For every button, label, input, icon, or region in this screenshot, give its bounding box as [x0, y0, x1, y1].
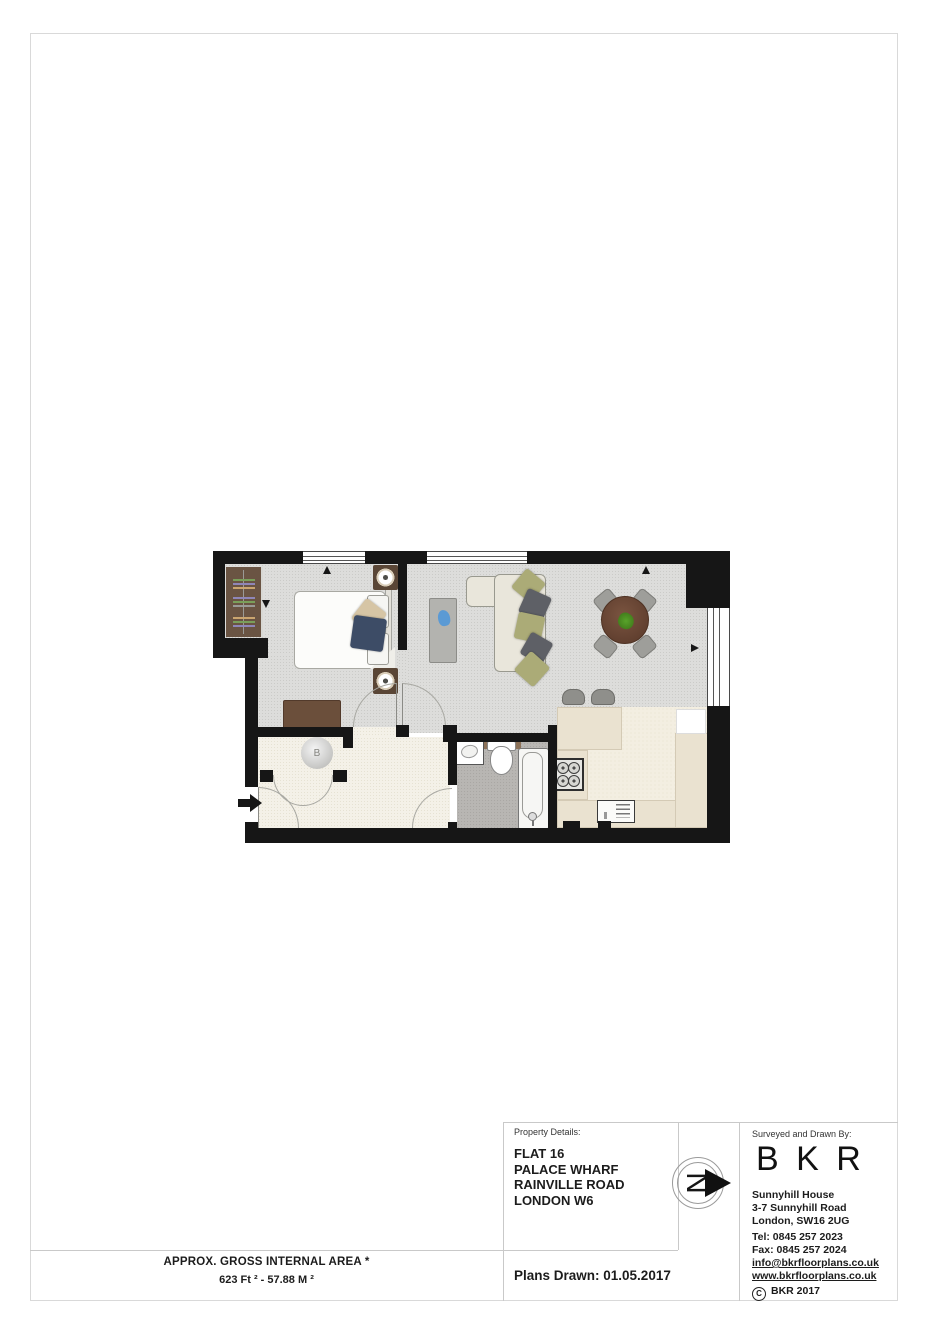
- clothes-hangers: [233, 597, 255, 607]
- bathroom-sink: [456, 739, 484, 765]
- company-address: Sunnyhill House 3-7 Sunnyhill Road Londo…: [752, 1189, 849, 1228]
- copyright-text: BKR 2017: [771, 1285, 820, 1297]
- floorplan-document-page: B: [0, 0, 932, 1332]
- boiler-label: B: [314, 748, 321, 759]
- footer-divider: [30, 1250, 678, 1251]
- hob-burner: [568, 762, 580, 774]
- wall: [448, 737, 457, 785]
- appliance-vents: [616, 804, 630, 818]
- north-arrow-pointer: [705, 1169, 731, 1197]
- dresser: [283, 700, 341, 729]
- wall: [398, 564, 407, 650]
- wall: [213, 551, 303, 564]
- wall: [686, 551, 730, 608]
- wall-marker-arrow: [642, 566, 650, 574]
- bedside-speaker: [373, 565, 398, 590]
- cushion-navy: [350, 615, 387, 652]
- toilet-bowl: [490, 746, 513, 775]
- bkr-logo: B K R: [756, 1140, 865, 1179]
- wall: [260, 770, 273, 782]
- wall: [448, 822, 457, 843]
- wall: [245, 822, 258, 843]
- wall: [548, 725, 557, 828]
- window: [303, 551, 365, 564]
- bathtub-inner: [522, 752, 543, 819]
- appliance-dial: [604, 812, 607, 819]
- table-plant: [615, 610, 636, 631]
- title-block-divider: [739, 1122, 740, 1301]
- website-link[interactable]: www.bkrfloorplans.co.uk: [752, 1270, 876, 1283]
- wall: [443, 733, 557, 742]
- sink-basin: [460, 743, 479, 759]
- wall: [213, 638, 268, 658]
- property-address: FLAT 16 PALACE WHARF RAINVILLE ROAD LOND…: [514, 1146, 625, 1208]
- kitchen-tall-unit: [676, 709, 706, 734]
- wall-marker-arrow: [262, 600, 270, 608]
- plans-drawn-date: Plans Drawn: 01.05.2017: [514, 1268, 671, 1283]
- wall: [245, 828, 730, 843]
- title-block-divider: [503, 1122, 504, 1301]
- wall: [333, 770, 347, 782]
- email-link[interactable]: info@bkrfloorplans.co.uk: [752, 1257, 879, 1270]
- telephone-number: Tel: 0845 257 2023: [752, 1231, 843, 1244]
- boiler: B: [301, 737, 333, 769]
- wall: [365, 551, 427, 564]
- company-address-line: 3-7 Sunnyhill Road: [752, 1202, 849, 1215]
- wall: [707, 706, 730, 843]
- entrance-arrow: [238, 799, 250, 807]
- kitchen-counter: [557, 707, 622, 750]
- wall-marker-arrow: [323, 566, 331, 574]
- clothes-hangers: [233, 579, 255, 589]
- property-details-label: Property Details:: [514, 1127, 581, 1137]
- wall: [396, 725, 409, 737]
- wall-pillar: [598, 821, 611, 830]
- bath-tap-stem: [532, 820, 534, 826]
- property-address-line: LONDON W6: [514, 1193, 625, 1209]
- copyright-icon: C: [752, 1287, 766, 1301]
- stool: [591, 689, 615, 705]
- surveyed-by-label: Surveyed and Drawn By:: [752, 1129, 852, 1139]
- company-address-line: Sunnyhill House: [752, 1189, 849, 1202]
- gross-internal-area-value: 623 Ft ² - 57.88 M ²: [30, 1274, 503, 1286]
- wall: [258, 727, 353, 737]
- window: [707, 608, 730, 706]
- entrance-arrow-head: [250, 794, 262, 812]
- property-address-line: RAINVILLE ROAD: [514, 1177, 625, 1193]
- wall: [343, 732, 353, 748]
- title-block-divider: [503, 1122, 898, 1123]
- kitchen-counter: [675, 733, 711, 828]
- wall: [245, 655, 258, 787]
- clothes-hangers: [233, 617, 255, 627]
- floorplan-drawing: B: [213, 545, 730, 843]
- window: [427, 551, 527, 564]
- bathtub: [518, 748, 549, 830]
- wall-pillar: [563, 821, 580, 830]
- hob: [553, 758, 584, 791]
- wardrobe: [226, 567, 263, 637]
- fax-number: Fax: 0845 257 2024: [752, 1244, 847, 1257]
- company-address-line: London, SW16 2UG: [752, 1215, 849, 1228]
- property-address-line: FLAT 16: [514, 1146, 625, 1162]
- tv-unit: [429, 598, 457, 663]
- property-address-line: PALACE WHARF: [514, 1162, 625, 1178]
- north-arrow: N: [672, 1157, 724, 1209]
- oven-appliance: [597, 800, 635, 823]
- copyright-notice: CBKR 2017: [752, 1285, 820, 1301]
- wall-marker-arrow: [691, 644, 699, 652]
- tv-object: [436, 609, 451, 627]
- stool: [562, 689, 585, 705]
- hob-burner: [568, 775, 580, 787]
- gross-internal-area-title: APPROX. GROSS INTERNAL AREA *: [30, 1256, 503, 1268]
- dining-table: [601, 596, 649, 644]
